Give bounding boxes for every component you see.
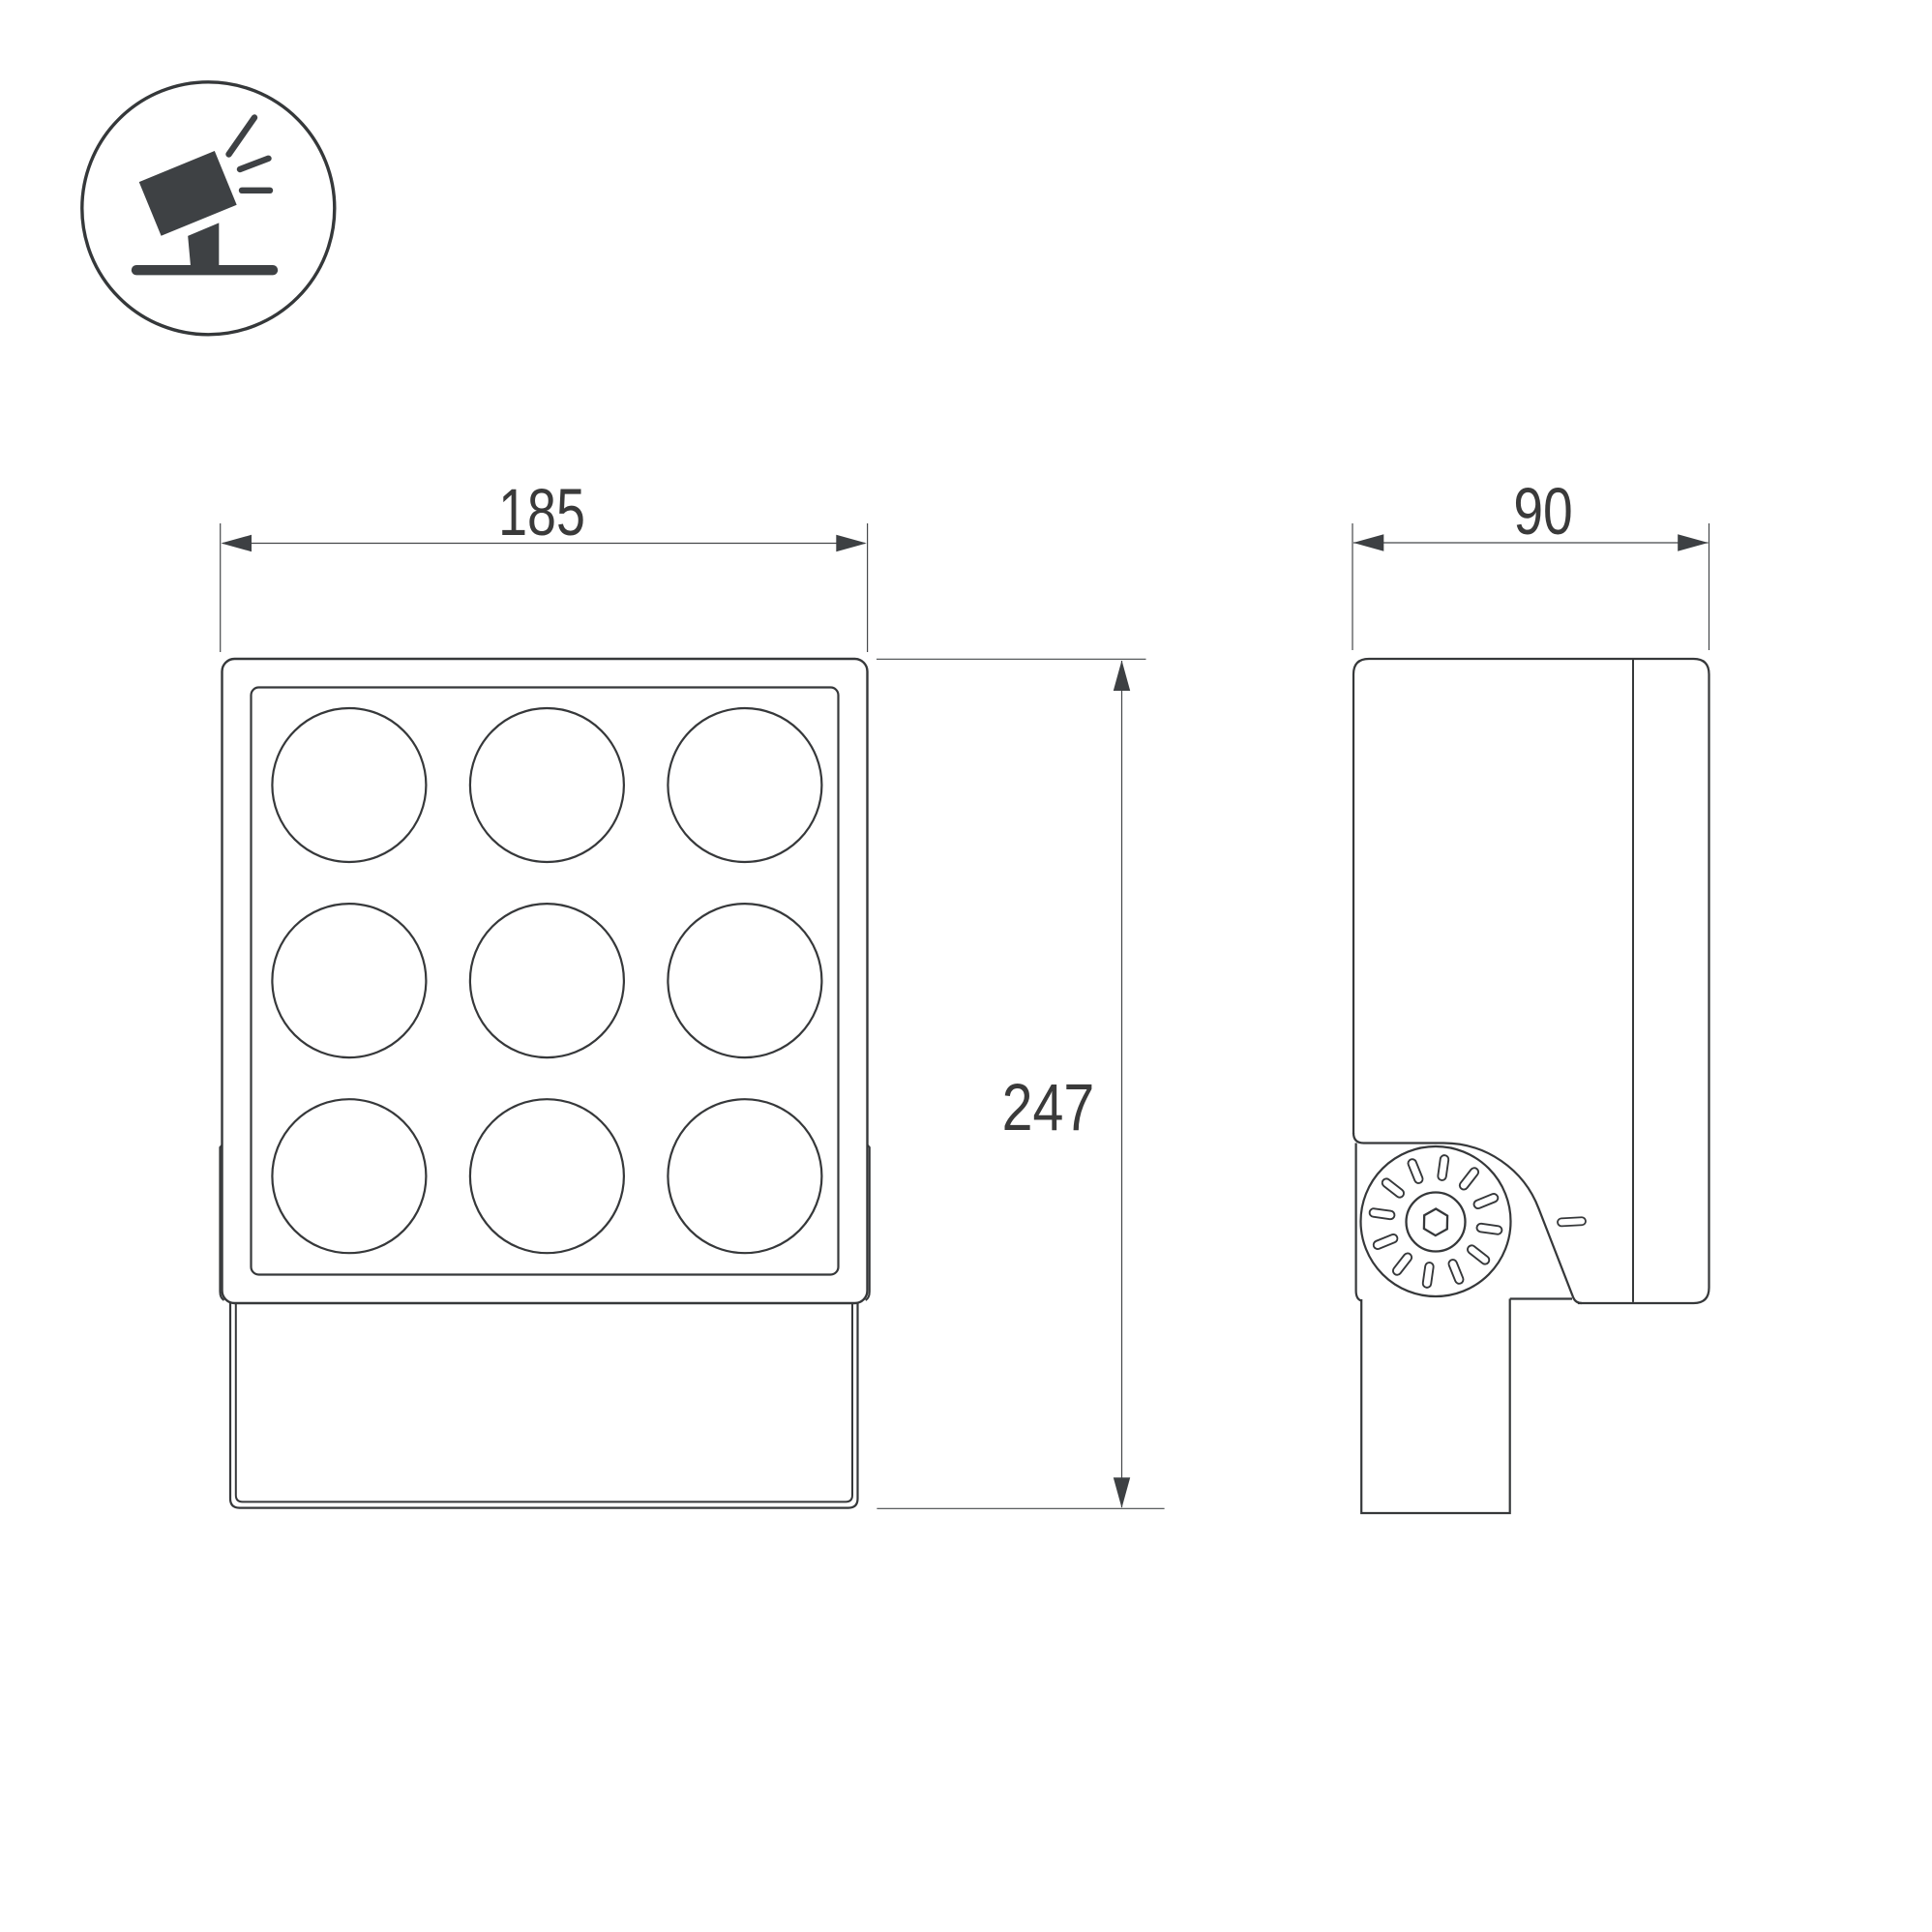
svg-text:90: 90 — [1513, 474, 1572, 549]
svg-text:247: 247 — [1002, 1071, 1095, 1144]
svg-text:185: 185 — [498, 476, 585, 550]
